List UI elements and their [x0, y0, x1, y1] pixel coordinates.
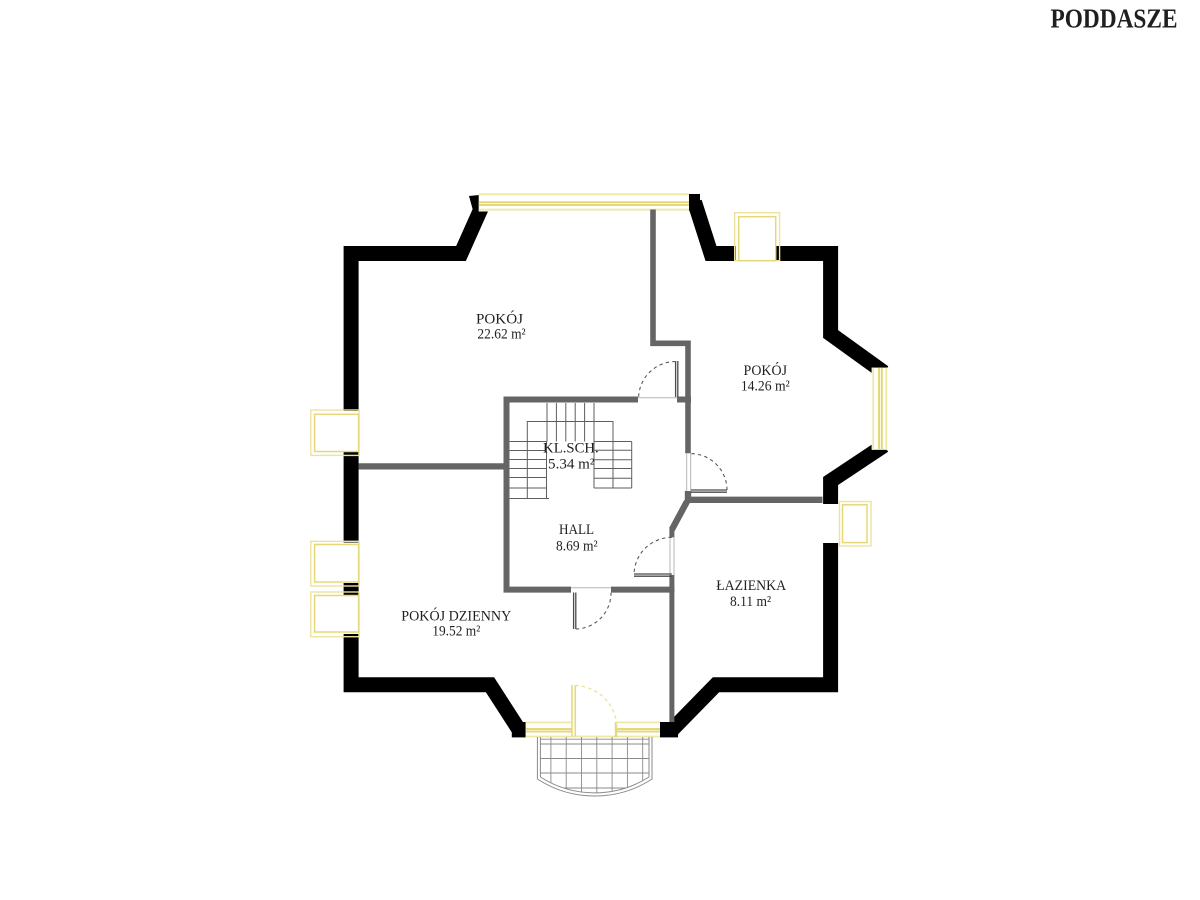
svg-text:HALL: HALL	[559, 522, 594, 538]
svg-text:19.52 m²: 19.52 m²	[432, 624, 480, 640]
svg-text:8.69 m²: 8.69 m²	[556, 539, 598, 555]
svg-text:22.62 m²: 22.62 m²	[477, 327, 526, 343]
svg-text:POKÓJ: POKÓJ	[476, 311, 523, 328]
svg-text:KL.SCH.: KL.SCH.	[543, 441, 599, 457]
svg-text:POKÓJ DZIENNY: POKÓJ DZIENNY	[401, 608, 511, 625]
svg-text:ŁAZIENKA: ŁAZIENKA	[716, 578, 786, 594]
svg-text:PODDASZE: PODDASZE	[1051, 4, 1178, 34]
svg-text:8.11 m²: 8.11 m²	[730, 594, 771, 610]
svg-text:14.26 m²: 14.26 m²	[741, 378, 790, 394]
svg-text:5.34 m²: 5.34 m²	[548, 457, 595, 473]
svg-text:POKÓJ: POKÓJ	[744, 362, 788, 379]
